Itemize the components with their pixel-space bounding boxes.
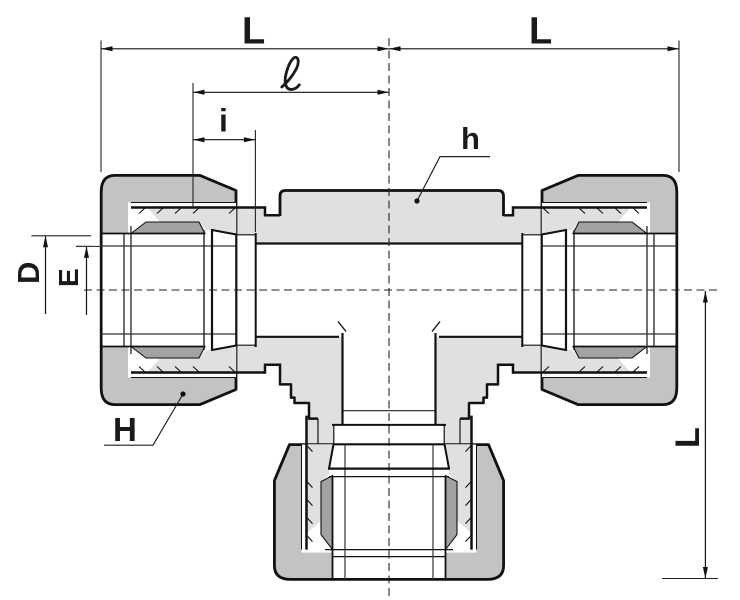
svg-text:H: H (113, 411, 137, 448)
svg-text:h: h (461, 121, 480, 156)
svg-text:L: L (242, 11, 265, 53)
svg-text:i: i (219, 103, 228, 139)
svg-text:L: L (669, 427, 707, 448)
svg-text:L: L (529, 11, 552, 53)
svg-text:D: D (11, 262, 46, 284)
svg-text:E: E (53, 268, 84, 287)
